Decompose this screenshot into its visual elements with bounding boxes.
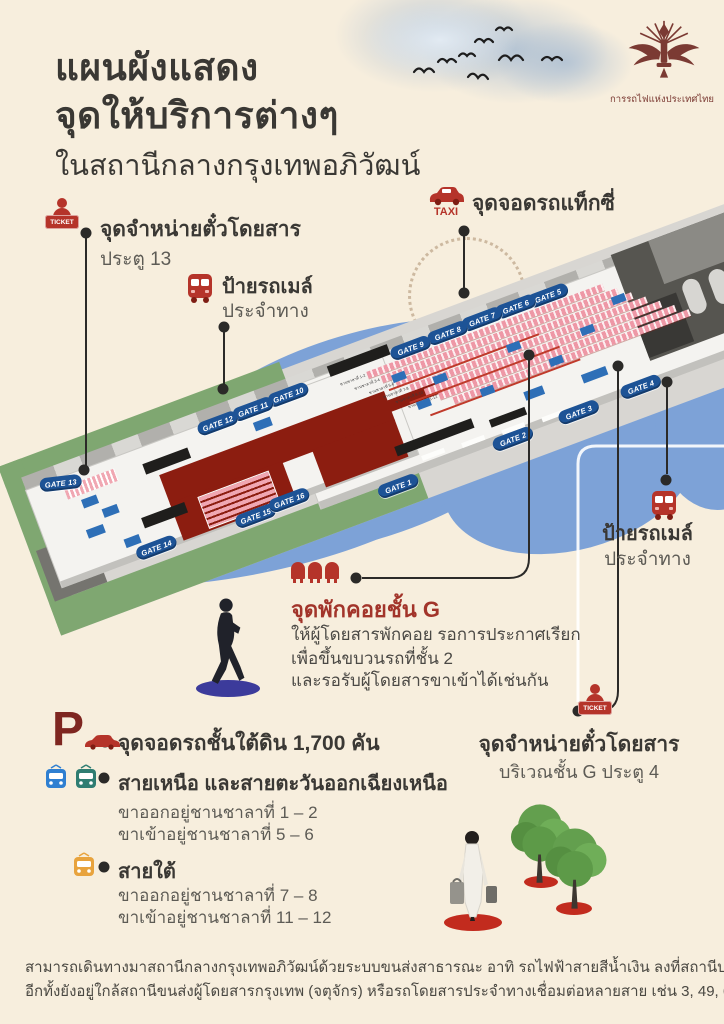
woman-with-luggage xyxy=(444,830,504,922)
logo-caption: การรถไฟแห่งประเทศไทย xyxy=(600,92,724,107)
callout-ticket-left-sub: ประตู 13 xyxy=(100,247,171,273)
ticket-agent-icon: TICKET xyxy=(578,684,614,718)
callout-waiting-title: จุดพักคอยชั้น G xyxy=(291,595,440,625)
page-title-line3: ในสถานีกลางกรุงเทพอภิวัฒน์ xyxy=(55,142,420,188)
callout-bus-left-sub: ประจำทาง xyxy=(222,299,309,325)
srt-logo-icon xyxy=(622,16,706,90)
birds-icon xyxy=(300,10,600,110)
callout-ticket-right-sub: บริเวณชั้น G ประตู 4 xyxy=(464,760,694,784)
legend-south-arrive: ขาเข้าอยู่ชานชาลาที่ 11 – 12 xyxy=(118,904,331,931)
bus-icon xyxy=(186,272,214,304)
train-icons-north xyxy=(44,764,98,792)
infographic-canvas: แผนผังแสดง จุดให้บริการต่างๆ ในสถานีกลาง… xyxy=(0,0,724,1024)
parking-icon: P xyxy=(52,706,84,754)
taxi-badge: TAXI xyxy=(426,206,466,218)
bus-icon xyxy=(650,489,678,521)
legend-parking-label: จุดจอดรถชั้นใต้ดิน 1,700 คัน xyxy=(118,727,380,760)
footer-line1: สามารถเดินทางมาสถานีกลางกรุงเทพอภิวัฒน์ด… xyxy=(25,956,724,980)
walking-man xyxy=(198,598,250,690)
footer-text: สามารถเดินทางมาสถานีกลางกรุงเทพอภิวัฒน์ด… xyxy=(25,956,724,1004)
seats-icon xyxy=(291,562,343,586)
callout-taxi-title: จุดจอดรถแท็กซี่ xyxy=(472,190,615,218)
legend-north-label: สายเหนือ และสายตะวันออกเฉียงเหนือ xyxy=(118,767,448,799)
footer-line2: อีกทั้งยังอยู่ใกล้สถานีขนส่งผู้โดยสารกรุ… xyxy=(25,980,724,1004)
ticket-badge: TICKET xyxy=(45,215,79,229)
callout-waiting-desc1: ให้ผู้โดยสารพักคอย รอการประกาศเรียก xyxy=(291,624,581,647)
taxi-icon xyxy=(426,184,466,206)
callout-waiting-desc2: เพื่อขึ้นขบวนรถที่ชั้น 2 xyxy=(291,648,453,671)
callout-bus-right-sub: ประจำทาง xyxy=(585,547,710,573)
train-icon-south xyxy=(72,852,96,880)
callout-ticket-left-title: จุดจำหน่ายตั๋วโดยสาร xyxy=(100,216,301,244)
callout-bus-right-title: ป้ายรถเมล์ xyxy=(585,521,710,548)
legend-north-arrive: ขาเข้าอยู่ชานชาลาที่ 5 – 6 xyxy=(118,821,314,848)
car-icon xyxy=(82,733,122,750)
ticket-badge: TICKET xyxy=(578,701,612,715)
tree-icon xyxy=(538,824,612,914)
callout-bus-left-title: ป้ายรถเมล์ xyxy=(222,274,313,301)
page-title-line1: แผนผังแสดง xyxy=(55,44,259,92)
page-title-line2: จุดให้บริการต่างๆ xyxy=(55,92,339,140)
callout-waiting-desc3: และรอรับผู้โดยสารขาเข้าได้เช่นกัน xyxy=(291,670,549,693)
callout-ticket-right-title: จุดจำหน่ายตั๋วโดยสาร xyxy=(464,731,694,759)
ticket-agent-icon: TICKET xyxy=(45,198,81,232)
